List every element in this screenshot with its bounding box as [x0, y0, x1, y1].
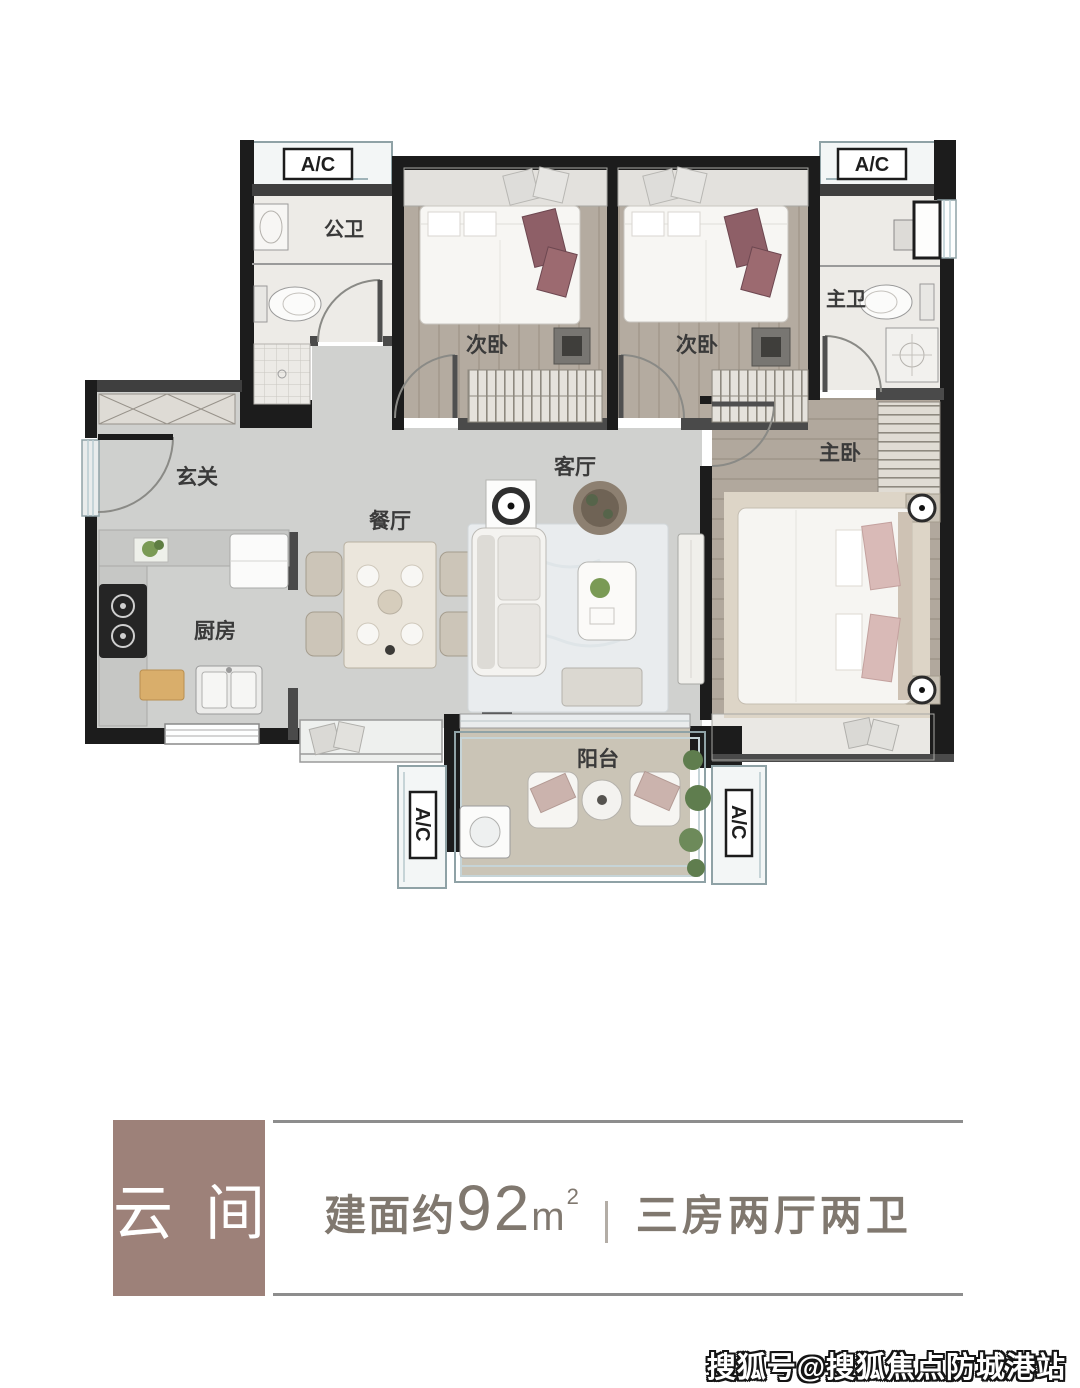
pillow — [671, 167, 707, 203]
pillow — [503, 169, 539, 205]
cutting-board — [140, 670, 184, 700]
floorplan-drawing: A/C A/C — [0, 0, 1080, 960]
spec-row: 建面约92m2三房两厅两卫 — [273, 1120, 963, 1296]
niche — [914, 202, 940, 258]
label-bedroom-b: 次卧 — [676, 333, 718, 357]
unit-name-box: 云间 — [113, 1120, 265, 1296]
label-public-bath: 公卫 — [324, 218, 364, 241]
spec-divider-bar — [605, 1201, 608, 1243]
toilet — [269, 287, 321, 321]
ac-platform-top-right: A/C — [820, 142, 940, 191]
ac-platform-bottom-right: A/C — [712, 766, 766, 884]
label-master-bedroom: 主卧 — [819, 442, 861, 465]
entry-window — [82, 440, 99, 516]
plant — [679, 828, 703, 852]
label-dining: 餐厅 — [369, 509, 411, 533]
label-bedroom-a: 次卧 — [466, 333, 508, 357]
bay-window-seat-living — [300, 720, 442, 762]
bench — [562, 668, 642, 706]
chair — [306, 552, 342, 596]
toilet-tank — [920, 284, 934, 320]
ac-label-top-left: A/C — [301, 154, 335, 176]
label-entry: 玄关 — [176, 465, 218, 489]
area-unit: m — [531, 1195, 564, 1239]
plant — [683, 750, 703, 770]
ac-label-bottom-left: A/C — [411, 807, 433, 841]
ac-platform-bottom-left: A/C — [398, 766, 446, 888]
shoe-cabinet — [99, 394, 235, 424]
area-prefix: 建面约 — [324, 1192, 456, 1239]
plant — [590, 578, 610, 598]
coffee-table — [578, 562, 636, 640]
pillow — [867, 719, 899, 751]
plant — [685, 785, 711, 811]
floorplan-page: A/C A/C — [0, 0, 1080, 1388]
label-kitchen: 厨房 — [194, 619, 236, 643]
chair — [306, 612, 342, 656]
pillow — [334, 722, 365, 753]
area-value: 92 — [456, 1172, 531, 1244]
headboard — [898, 512, 912, 700]
room-master-bedroom: 主卧 — [712, 402, 940, 760]
toilet-tank — [254, 286, 267, 322]
pillow — [533, 167, 569, 203]
sofa-back — [477, 535, 495, 669]
label-master-bath: 主卫 — [826, 287, 866, 311]
ac-label-top-right: A/C — [855, 154, 889, 176]
ac-platform-top-left: A/C — [252, 142, 392, 191]
layout-text: 三房两厅两卫 — [636, 1192, 912, 1239]
watermark: 搜狐号@搜狐焦点防城港站 — [707, 1344, 1066, 1386]
label-living: 客厅 — [554, 455, 596, 479]
shower-fixture — [894, 220, 914, 250]
ac-label-bottom-right: A/C — [727, 805, 749, 839]
toilet — [860, 285, 912, 319]
area-exponent: 2 — [567, 1184, 579, 1209]
shower-tray — [254, 344, 310, 404]
wardrobe — [878, 402, 940, 496]
unit-name: 云间 — [113, 1165, 297, 1252]
plant — [687, 859, 705, 877]
label-balcony: 阳台 — [577, 747, 619, 771]
kitchen-window — [165, 724, 259, 744]
